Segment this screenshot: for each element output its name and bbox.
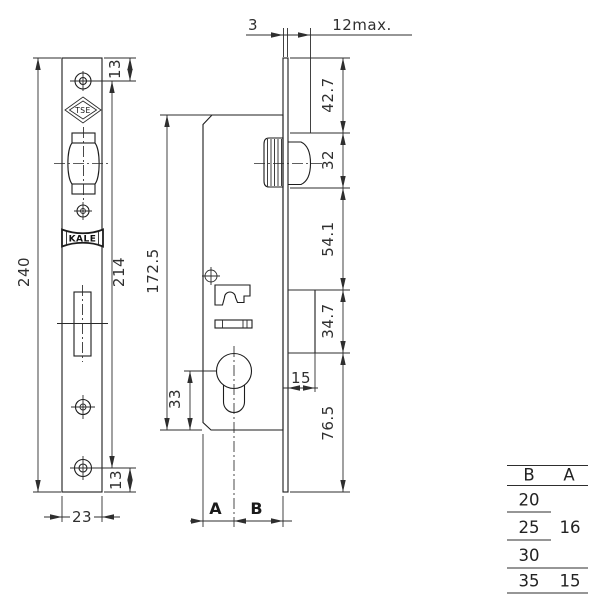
arrow [187, 418, 192, 430]
dim-latch-projection: 12max. [332, 16, 392, 34]
technical-drawing: TSE KALE [0, 0, 600, 600]
arrow [340, 188, 345, 200]
table-cell-b-2: 30 [519, 546, 540, 565]
faceplate-outline [62, 58, 102, 492]
arrow [340, 133, 345, 145]
arrow [127, 468, 132, 480]
dim-offset-top: 13 [106, 59, 124, 79]
arrow [298, 32, 310, 37]
arrow [340, 121, 345, 133]
dim-backset-b: B [250, 499, 263, 518]
table-cell-a-shared: 16 [560, 518, 581, 537]
roller-knurl-outline [264, 138, 283, 187]
arrow [109, 456, 114, 468]
internal-slot-bar [215, 320, 252, 328]
arrow [340, 480, 345, 492]
dim-seg-roller: 32 [319, 150, 337, 170]
table-cell-b-3: 35 [519, 572, 540, 591]
table-cell-b-1: 25 [519, 518, 540, 537]
arrow [234, 518, 246, 523]
dim-screw-span: 214 [110, 257, 128, 287]
arrow [164, 115, 169, 127]
arrow [187, 371, 192, 383]
arrow [127, 69, 132, 81]
arrow [340, 176, 345, 188]
size-table: B A 20 25 16 30 35 15 [507, 466, 588, 594]
dim-bolt-throw: 15 [291, 369, 311, 387]
faceplate-side-outline [283, 58, 288, 492]
arrow [340, 290, 345, 302]
arrow [340, 353, 345, 365]
dim-seg-mid: 54.1 [319, 221, 337, 256]
dim-case-height: 172.5 [144, 248, 162, 293]
tse-logo-text: TSE [74, 106, 91, 115]
arrow [271, 32, 283, 37]
dim-seg-bottom: 76.5 [319, 405, 337, 440]
arrow [109, 81, 114, 93]
arrow [340, 278, 345, 290]
table-cell-a-last: 15 [560, 572, 581, 591]
arrow [191, 518, 203, 523]
dim-plate-width: 23 [72, 508, 92, 526]
arrow [102, 514, 114, 519]
arrow [35, 58, 40, 70]
table-header-a: A [563, 466, 575, 485]
arrow [127, 480, 132, 492]
arrow [340, 58, 345, 70]
dim-backset-a: A [209, 499, 222, 518]
dimensions: 3 12max. 240 214 13 13 23 [15, 16, 412, 527]
dim-plate-thickness: 3 [248, 16, 258, 34]
arrow [127, 58, 132, 70]
dim-offset-bottom: 13 [107, 470, 125, 490]
arrow [164, 418, 169, 430]
arrow [340, 341, 345, 353]
kale-logo-text: KALE [69, 235, 97, 245]
dim-plate-height: 240 [15, 257, 33, 287]
table-header-b: B [523, 466, 534, 485]
table-cell-b-0: 20 [519, 491, 540, 510]
arrow [50, 514, 62, 519]
dim-seg-top: 42.7 [319, 77, 337, 112]
lock-case-side-view [202, 58, 322, 527]
arrow [35, 480, 40, 492]
arrow [271, 518, 283, 523]
dim-seg-bolt: 34.7 [319, 303, 337, 338]
internal-keeper-shape [215, 285, 250, 305]
dim-cyl-to-bottom: 33 [166, 389, 184, 409]
lock-dimension-drawing: TSE KALE [0, 0, 600, 600]
